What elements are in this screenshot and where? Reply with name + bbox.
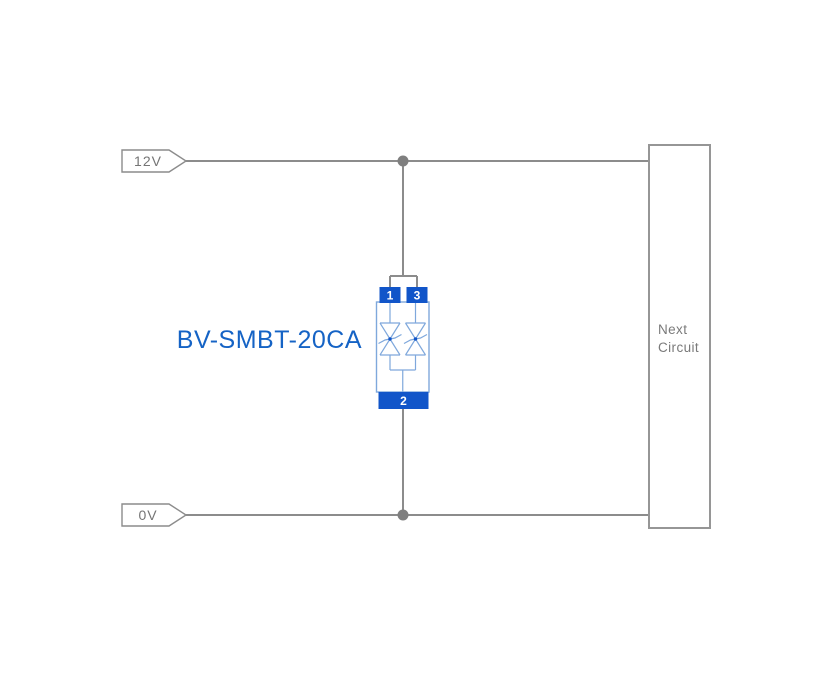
- circuit-diagram-canvas: 12V 0V Next Circuit: [0, 0, 832, 675]
- ground-net-tag: 0V: [122, 504, 186, 526]
- diode-center-dot-right: [414, 337, 417, 340]
- tvs-component: 1 3 2: [377, 287, 430, 409]
- top-junction-dot: [398, 156, 409, 167]
- pin3-number: 3: [414, 289, 421, 303]
- diode-center-dot-left: [388, 337, 391, 340]
- bottom-junction-dot: [398, 510, 409, 521]
- schematic-svg: 12V 0V Next Circuit: [0, 0, 832, 675]
- next-circuit-label-line1: Next: [658, 322, 687, 337]
- next-circuit-block: Next Circuit: [649, 145, 710, 528]
- power-tag-label: 12V: [134, 153, 162, 169]
- power-net-tag: 12V: [122, 150, 186, 172]
- component-part-number-label: BV-SMBT-20CA: [177, 326, 362, 354]
- ground-tag-label: 0V: [138, 507, 157, 523]
- next-circuit-label-line2: Circuit: [658, 340, 699, 355]
- pin2-number: 2: [400, 394, 407, 408]
- pin1-number: 1: [387, 289, 394, 303]
